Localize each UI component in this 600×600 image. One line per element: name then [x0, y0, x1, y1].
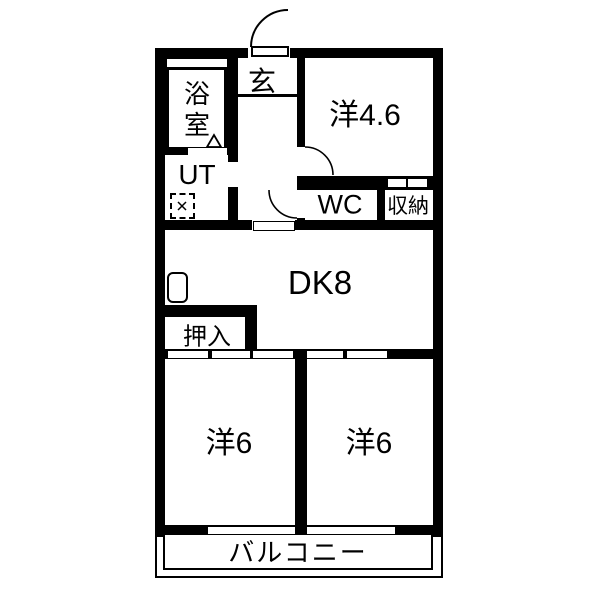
- balcony-label: バルコニー: [228, 533, 367, 570]
- entrance-label: 玄: [248, 60, 276, 100]
- storage-label: 収納: [387, 190, 429, 220]
- western46-label: 洋4.6: [329, 90, 401, 134]
- dk-label: DK8: [288, 264, 352, 302]
- bathroom-label: 浴 室: [165, 79, 229, 141]
- western6-right-label: 洋6: [346, 418, 393, 462]
- closet-label: 押入: [183, 317, 231, 352]
- wc-label: WC: [318, 190, 363, 221]
- entrance-door-arc-icon: [251, 10, 288, 47]
- utility-label: UT: [178, 159, 215, 191]
- wc-door-arc-icon: [269, 190, 297, 218]
- washer-cross-icon: [178, 202, 186, 210]
- western6-left-label: 洋6: [206, 418, 253, 462]
- bathroom-label-line2: 室: [165, 110, 229, 141]
- bathroom-label-line1: 浴: [165, 79, 229, 110]
- western46-door-arc-icon: [305, 147, 333, 175]
- floorplan-canvas: 浴 室 玄 洋4.6 UT WC 収納 DK8 押入 洋6 洋6 バルコニー: [0, 0, 600, 600]
